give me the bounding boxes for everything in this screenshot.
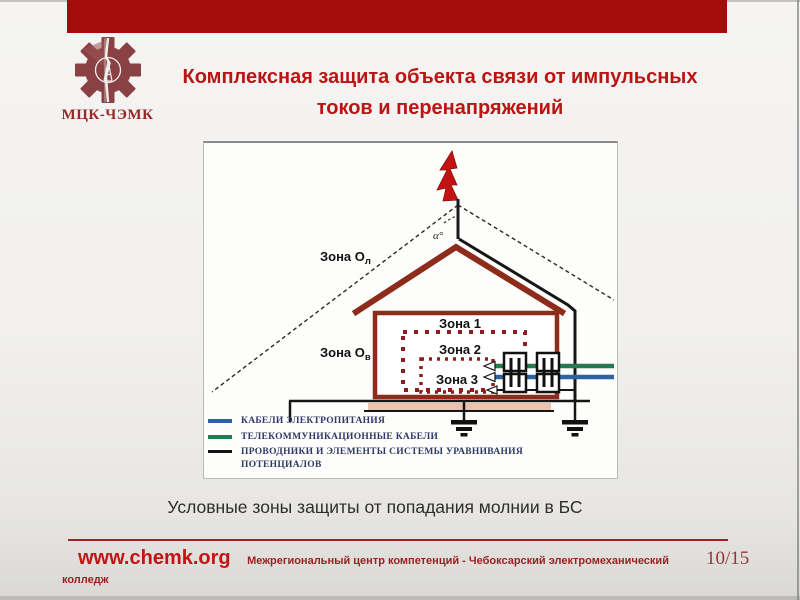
legend-label: ПРОВОДНИКИ И ЭЛЕМЕНТЫ СИСТЕМЫ УРАВНИВАНИ… — [241, 446, 541, 471]
power-cable-swatch — [208, 419, 232, 423]
legend-item-bonding-conductors: ПРОВОДНИКИ И ЭЛЕМЕНТЫ СИСТЕМЫ УРАВНИВАНИ… — [208, 446, 568, 471]
zone1-label: Зона 1 — [439, 316, 481, 331]
alpha-angle-label: α° — [433, 230, 444, 242]
slide-right-edge — [797, 0, 799, 600]
slide-title: Комплексная защита объекта связи от импу… — [115, 62, 765, 124]
zone-ov-label: Зона Ов — [320, 345, 371, 363]
legend-label: КАБЕЛИ ЭЛЕКТРОПИТАНИЯ — [241, 415, 385, 428]
lightning-bolt-icon — [437, 151, 458, 201]
footer: www.chemk.org Межрегиональный центр комп… — [62, 547, 710, 588]
gear-logo-icon — [75, 37, 141, 103]
presentation-slide: МЦК-ЧЭМК Комплексная защита объекта связ… — [0, 0, 800, 600]
bonding-conductor-swatch — [208, 450, 232, 453]
alpha-angle-arc — [444, 216, 458, 223]
legend-item-power-cables: КАБЕЛИ ЭЛЕКТРОПИТАНИЯ — [208, 415, 568, 428]
diagram-caption: Условные зоны защиты от попадания молнии… — [60, 497, 690, 518]
zone3-label: Зона 3 — [436, 372, 478, 387]
page-number: 10/15 — [706, 548, 749, 570]
telecom-cable-swatch — [208, 435, 232, 439]
zone-ol-label: Зона Ол — [320, 249, 371, 267]
slide-title-line1: Комплексная защита объекта связи от импу… — [115, 62, 765, 93]
footer-url: www.chemk.org — [78, 547, 231, 569]
slide-bottom-edge — [0, 596, 800, 600]
slide-title-line2: токов и перенапряжений — [115, 93, 765, 124]
footer-divider — [68, 539, 728, 541]
diagram-legend: КАБЕЛИ ЭЛЕКТРОПИТАНИЯ ТЕЛЕКОММУНИКАЦИОНН… — [208, 415, 568, 474]
legend-label: ТЕЛЕКОММУНИКАЦИОННЫЕ КАБЕЛИ — [241, 431, 438, 444]
zone2-label: Зона 2 — [439, 342, 481, 357]
logo-text: МЦК-ЧЭМК — [55, 107, 160, 124]
lightning-protection-diagram: α° Зона Ол Зона Ов — [203, 141, 618, 479]
legend-item-telecom-cables: ТЕЛЕКОММУНИКАЦИОННЫЕ КАБЕЛИ — [208, 431, 568, 444]
header-red-bar — [67, 0, 727, 33]
